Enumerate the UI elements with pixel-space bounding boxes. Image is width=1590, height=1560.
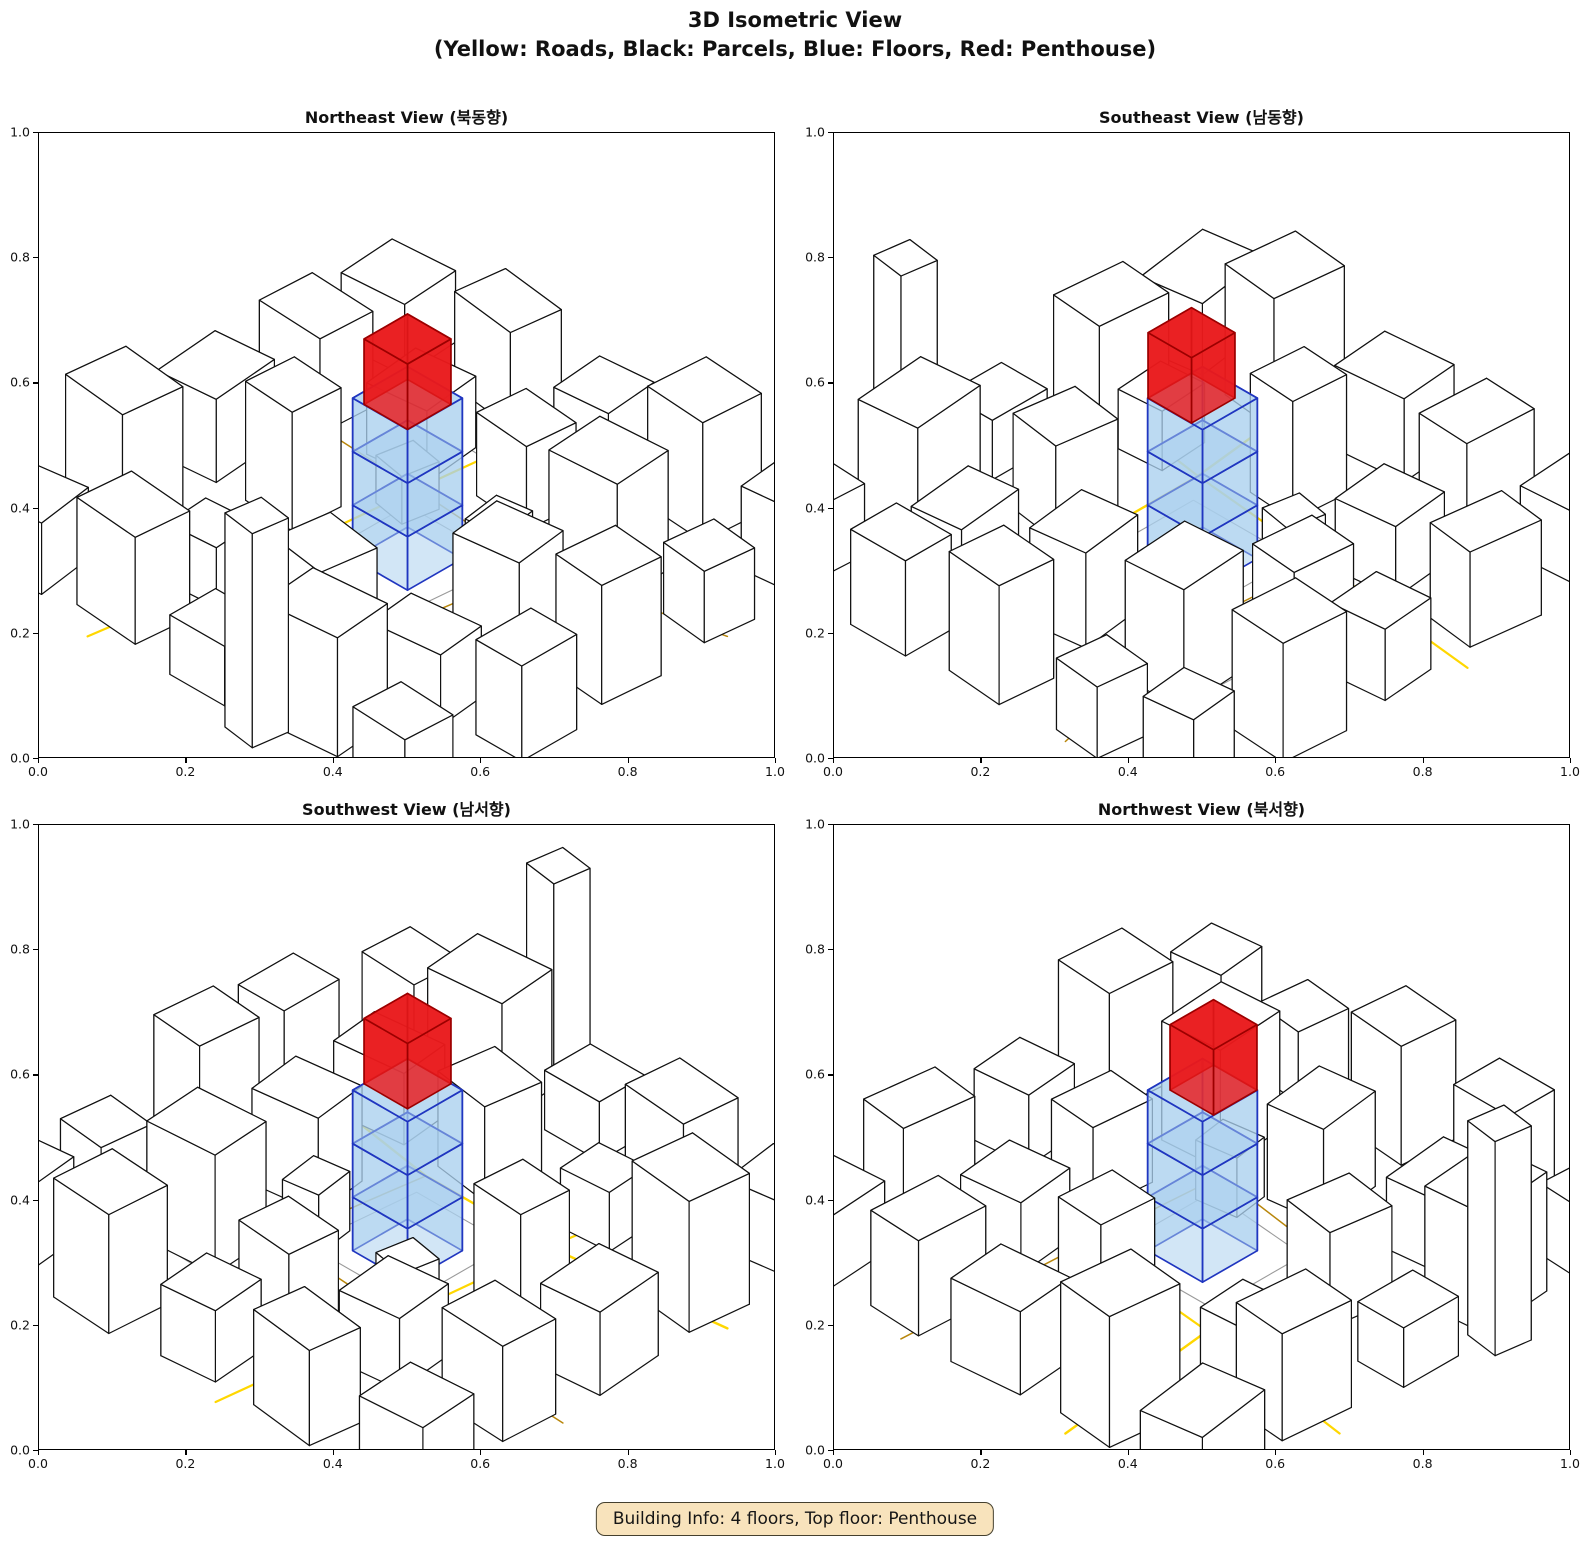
x-tick-mark [775,1450,776,1455]
x-tick-mark [1423,1450,1424,1455]
subplot-southeast: Southeast View (남동향) 0.00.00.20.20.40.40… [833,132,1570,758]
x-tick-label: 0.6 [470,1456,490,1471]
penthouse-box [364,314,451,429]
x-tick-mark [628,758,629,763]
buildings-layer [834,923,1570,1450]
figure-title-line1: 3D Isometric View [0,6,1590,35]
parcel-building-side-face [1495,1126,1531,1356]
parcel-building [161,1253,261,1382]
y-tick-label: 1.0 [805,125,825,140]
y-tick-label: 1.0 [805,817,825,832]
plot-area-southwest [38,824,775,1450]
x-tick-label: 0.2 [970,1456,990,1471]
subplot-title-southeast: Southeast View (남동향) [833,104,1570,128]
x-tick-label: 0.4 [323,1456,343,1471]
y-tick-mark [33,824,38,825]
y-tick-mark [828,758,833,759]
y-tick-mark [828,382,833,383]
y-tick-label: 1.0 [10,817,30,832]
y-tick-label: 0.8 [10,942,30,957]
x-tick-mark [480,1450,481,1455]
x-tick-mark [38,1450,39,1455]
x-tick-mark [833,1450,834,1455]
y-tick-mark [828,1200,833,1201]
parcel-building-side-face [252,518,288,748]
scene-southwest [39,825,775,1450]
subplot-northeast: Northeast View (북동향) 0.00.00.20.20.40.40… [38,132,775,758]
x-tick-label: 0.2 [175,764,195,779]
y-tick-mark [33,132,38,133]
y-tick-mark [33,257,38,258]
parcel-building [1232,578,1346,758]
y-tick-label: 0.2 [10,625,30,640]
x-tick-mark [1423,758,1424,763]
buildings-layer [39,848,775,1451]
x-tick-label: 0.2 [970,764,990,779]
y-tick-mark [828,1325,833,1326]
figure: 3D Isometric View (Yellow: Roads, Black:… [0,0,1590,1560]
y-tick-mark [33,508,38,509]
parcel-building [951,1244,1070,1395]
y-tick-mark [33,949,38,950]
penthouse-box [364,993,451,1108]
y-tick-mark [828,1074,833,1075]
x-tick-mark [1275,758,1276,763]
y-tick-label: 0.6 [805,375,825,390]
y-tick-mark [33,1450,38,1451]
x-tick-label: 0.0 [823,1456,843,1471]
scene-southeast [834,133,1570,758]
x-tick-label: 1.0 [1560,764,1580,779]
y-tick-mark [828,633,833,634]
x-tick-label: 0.8 [1413,764,1433,779]
y-tick-label: 0.2 [10,1317,30,1332]
x-tick-label: 0.6 [1265,1456,1285,1471]
y-tick-label: 0.0 [10,751,30,766]
buildings-layer [834,229,1570,758]
plot-area-southeast [833,132,1570,758]
y-tick-mark [828,132,833,133]
x-tick-mark [480,758,481,763]
x-tick-label: 0.4 [323,764,343,779]
subplot-northwest: Northwest View (북서향) 0.00.00.20.20.40.40… [833,824,1570,1450]
x-tick-mark [775,758,776,763]
y-tick-mark [828,949,833,950]
x-tick-mark [185,758,186,763]
y-tick-mark [33,633,38,634]
subplot-title-southwest: Southwest View (남서향) [38,796,775,820]
x-tick-label: 0.8 [1413,1456,1433,1471]
x-tick-mark [980,1450,981,1455]
parcel-building [476,608,577,758]
penthouse-box [1170,1000,1257,1115]
y-tick-label: 0.6 [805,1067,825,1082]
x-tick-label: 1.0 [765,1456,785,1471]
scene-northwest [834,825,1570,1450]
parcel-building [851,503,952,656]
y-tick-mark [828,1450,833,1451]
y-tick-mark [33,1200,38,1201]
x-tick-label: 1.0 [765,764,785,779]
x-tick-label: 0.4 [1118,1456,1138,1471]
parcel-building-side-face [292,388,341,531]
x-tick-mark [38,758,39,763]
y-tick-mark [828,508,833,509]
parcel-building [664,519,755,643]
subplot-title-northeast: Northeast View (북동향) [38,104,775,128]
x-tick-mark [980,758,981,763]
x-tick-mark [1128,1450,1129,1455]
y-tick-label: 0.0 [10,1443,30,1458]
x-tick-mark [1275,1450,1276,1455]
scene-northeast [39,133,775,758]
figure-title-line2: (Yellow: Roads, Black: Parcels, Blue: Fl… [0,35,1590,64]
x-tick-mark [628,1450,629,1455]
y-tick-label: 0.4 [805,1192,825,1207]
parcel-building [1468,1105,1531,1356]
parcel-building [225,497,288,748]
building-info-box: Building Info: 4 floors, Top floor: Pent… [596,1502,994,1536]
x-tick-label: 0.6 [470,764,490,779]
y-tick-label: 0.2 [805,1317,825,1332]
y-tick-label: 0.8 [805,250,825,265]
x-tick-label: 0.8 [618,1456,638,1471]
y-tick-mark [33,1074,38,1075]
parcel-building [54,1149,168,1334]
x-tick-label: 1.0 [1560,1456,1580,1471]
buildings-layer [39,239,775,758]
x-tick-label: 0.4 [1118,764,1138,779]
y-tick-label: 0.0 [805,1443,825,1458]
plot-area-northwest [833,824,1570,1450]
y-tick-mark [33,382,38,383]
y-tick-label: 0.4 [805,500,825,515]
y-tick-label: 0.4 [10,1192,30,1207]
figure-title: 3D Isometric View (Yellow: Roads, Black:… [0,6,1590,64]
y-tick-label: 0.4 [10,500,30,515]
penthouse-box [1148,308,1235,423]
subplot-title-northwest: Northwest View (북서향) [833,796,1570,820]
parcel-building [1057,635,1148,758]
parcel-building [949,525,1053,704]
x-tick-mark [1570,758,1571,763]
x-tick-mark [185,1450,186,1455]
x-tick-label: 0.6 [1265,764,1285,779]
parcel-building-side-face [1468,1121,1495,1356]
y-tick-label: 0.6 [10,1067,30,1082]
x-tick-mark [1570,1450,1571,1455]
x-tick-mark [333,1450,334,1455]
y-tick-mark [33,758,38,759]
x-tick-label: 0.8 [618,764,638,779]
x-tick-mark [833,758,834,763]
y-tick-label: 0.8 [10,250,30,265]
x-tick-label: 0.0 [823,764,843,779]
y-tick-label: 0.0 [805,751,825,766]
x-tick-mark [333,758,334,763]
x-tick-label: 0.0 [28,1456,48,1471]
x-tick-label: 0.0 [28,764,48,779]
x-tick-mark [1128,758,1129,763]
x-tick-label: 0.2 [175,1456,195,1471]
parcel-building-side-face [225,513,252,748]
y-tick-mark [828,824,833,825]
plot-area-northeast [38,132,775,758]
y-tick-label: 1.0 [10,125,30,140]
y-tick-mark [828,257,833,258]
y-tick-mark [33,1325,38,1326]
y-tick-label: 0.6 [10,375,30,390]
y-tick-label: 0.2 [805,625,825,640]
y-tick-label: 0.8 [805,942,825,957]
subplot-southwest: Southwest View (남서향) 0.00.00.20.20.40.40… [38,824,775,1450]
